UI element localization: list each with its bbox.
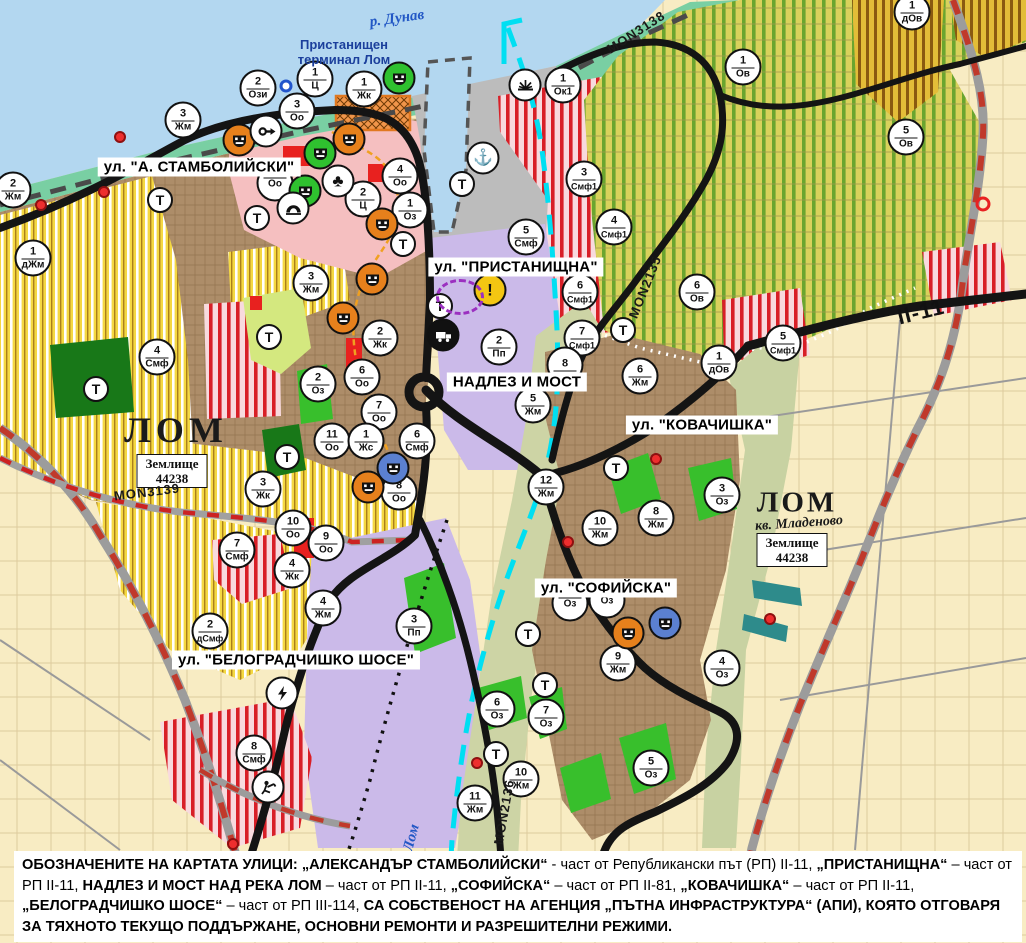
production-zone-south xyxy=(304,518,481,848)
urban-plan-map: 2Жм3Жм2Ози1Ц1Жк3ОоОо4Оо2Ц1Оз1Ок13Смф15См… xyxy=(0,0,1026,943)
legend-text-segment: „ПРИСТАНИЩНА“ xyxy=(816,857,947,873)
forest-patch-1 xyxy=(50,337,134,418)
legend-text-segment: „СОФИЙСКА“ xyxy=(451,878,551,894)
legend-text-segment: – част от РП II-81, xyxy=(550,878,680,894)
legend-text-segment: „АЛЕКСАНДЪР СТАМБОЛИЙСКИ“ xyxy=(302,857,548,873)
forest-patch-2 xyxy=(262,424,306,478)
legend-text-segment: – част от РП III-114, xyxy=(222,898,363,914)
legend-text-segment: – част от РП II-11, xyxy=(322,878,451,894)
legend-text-segment: – част от РП II-11, xyxy=(789,878,914,894)
legend-text-segment: - част от Републикански път (РП) II-11, xyxy=(548,857,817,873)
legend-note: ОБОЗНАЧЕНИТЕ НА КАРТАТА УЛИЦИ: „АЛЕКСАНД… xyxy=(14,851,1022,942)
legend-text-segment: „БЕЛОГРАДЧИШКО ШОСЕ“ xyxy=(22,898,222,914)
park-patch-1 xyxy=(297,364,333,424)
legend-text-segment: ОБОЗНАЧЕНИТЕ НА КАРТАТА УЛИЦИ: xyxy=(22,857,302,873)
legend-text-segment: „КОВАЧИШКА“ xyxy=(680,878,789,894)
map-base-layer xyxy=(0,0,1026,943)
legend-text-segment: НАДЛЕЗ И МОСТ НАД РЕКА ЛОМ xyxy=(83,878,322,894)
